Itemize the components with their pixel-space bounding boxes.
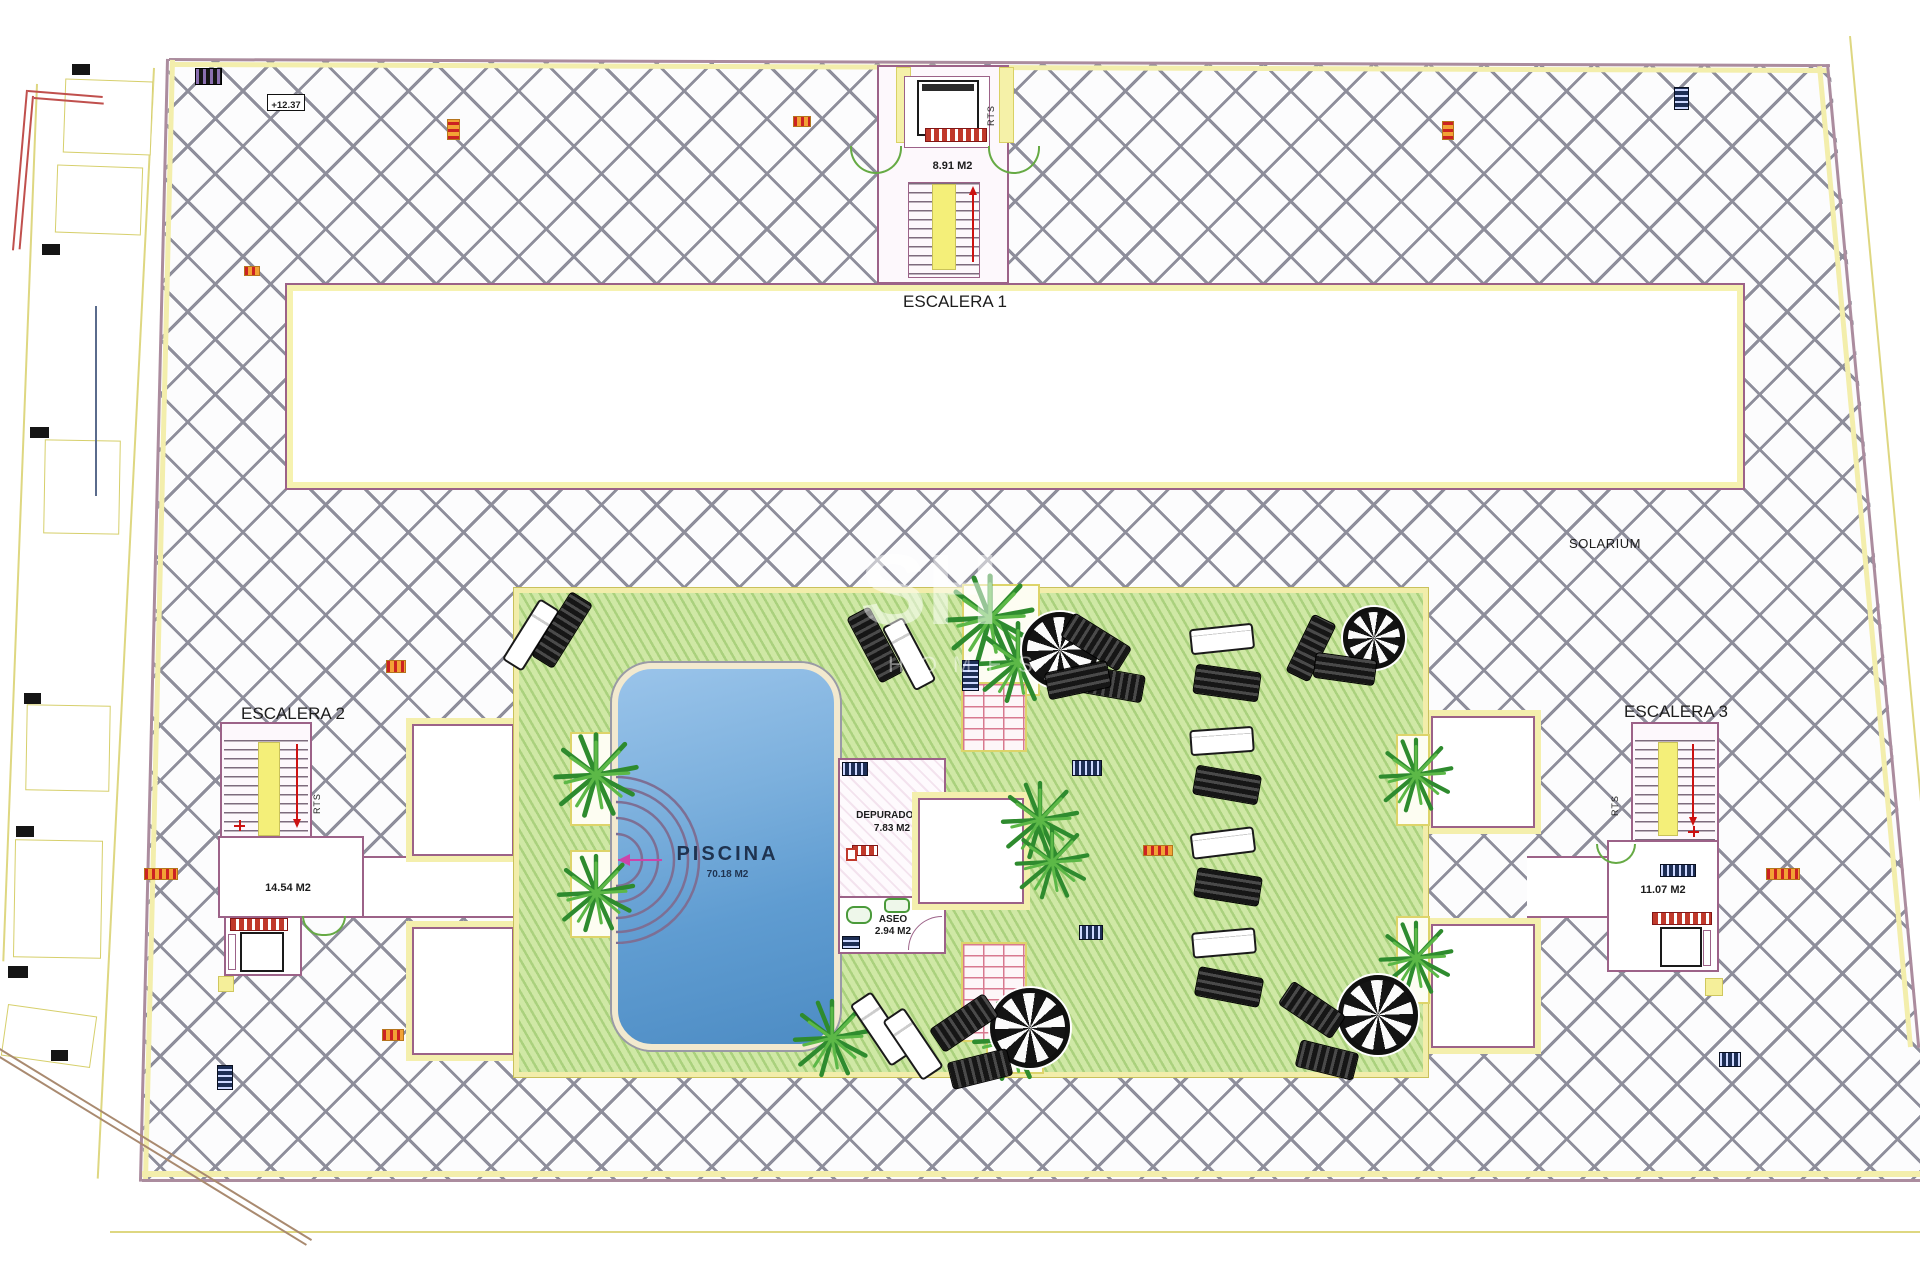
corridor-east [1527, 856, 1611, 918]
facade-panel [55, 165, 143, 236]
facade-panel [63, 78, 154, 155]
facade-vent-box [51, 1050, 68, 1061]
marker-blue [1719, 1052, 1741, 1067]
marker-blue [1079, 925, 1103, 940]
escalera3-room-badge [1660, 864, 1696, 877]
escalera2-area-label: 14.54 M2 [228, 882, 348, 894]
escalera3-lift-shaft [1660, 927, 1702, 967]
facade-vent-box [30, 427, 49, 438]
solarium-label: SOLARIUM [1540, 536, 1670, 551]
escalera2-stair-core [258, 742, 280, 836]
marker-orange [244, 266, 260, 276]
marker-blue [1072, 760, 1102, 776]
watermark-text: HOMES [888, 652, 1049, 678]
building-void [285, 283, 1745, 490]
palm-tree [1374, 733, 1458, 817]
rooftop-solarium-floor-plan: RTS 8.91 M2 ESCALERA 1 PISCINA 70.18 M2 … [0, 0, 1920, 1280]
palm-tree [1010, 820, 1094, 904]
escalera1-up-arrow [972, 190, 974, 262]
escalera1-lift-header [922, 84, 974, 91]
escalera1-yellow-strip [999, 67, 1014, 143]
palm-tree [552, 849, 640, 937]
pool-area-label: 70.18 M2 [640, 869, 815, 880]
corridor-west [356, 856, 516, 918]
escalera3-duct [1703, 930, 1711, 966]
escalera2-title: ESCALERA 2 [218, 704, 368, 724]
marker-orange [1442, 121, 1454, 140]
elevation-marker-value: +12.37 [271, 100, 300, 111]
marker-yellow [1705, 978, 1723, 996]
sun-lounger [1191, 927, 1257, 958]
escalera3-title: ESCALERA 3 [1600, 702, 1752, 722]
facade-vent-box [42, 244, 60, 255]
facade-vent-box [16, 826, 34, 837]
utility-badge-dark [195, 68, 222, 85]
marker-orange [1143, 845, 1173, 856]
marker-orange [144, 868, 178, 880]
escalera3-down-arrow [1692, 744, 1694, 822]
boundary-bottom [142, 1179, 1920, 1182]
toilet-fixture [884, 898, 910, 913]
sun-lounger [1189, 726, 1255, 756]
parasol [1338, 975, 1418, 1055]
escalera1-stair-core [932, 184, 956, 270]
palm-tree [548, 727, 644, 823]
aseo-title: ASEO [860, 914, 926, 925]
escalera2-marker-cross [234, 820, 245, 831]
marker-orange [382, 1029, 404, 1041]
escalera1-lift-doors [925, 128, 987, 142]
facade-panel [43, 439, 121, 534]
marker-orange [386, 660, 406, 673]
depuradora-floor-badge [842, 762, 868, 776]
marker-orange [1766, 868, 1800, 880]
pump-unit-body [846, 848, 857, 861]
escalera2-rts-label: RTS [312, 778, 326, 814]
escalera1-area-label: 8.91 M2 [905, 160, 1000, 172]
escalera2-down-arrow [296, 744, 298, 824]
escalera1-rts-label: RTS [986, 90, 1000, 126]
escalera3-lift-doors [1652, 912, 1712, 925]
escalera3-marker-cross [1688, 826, 1699, 837]
outer-yellow-bottom [110, 1231, 1920, 1233]
escalera2-room [218, 836, 364, 918]
facade-panel [13, 839, 103, 959]
escalera3-area-label: 11.07 M2 [1613, 884, 1713, 896]
escalera3-stair-core [1658, 742, 1678, 836]
pool-title: PISCINA [640, 843, 815, 866]
trim-bottom [142, 1171, 1920, 1177]
marker-yellow [218, 976, 234, 992]
blue-facade-line [95, 306, 97, 496]
escalera2-duct [228, 934, 236, 970]
marker-orange [793, 116, 811, 127]
marker-orange [447, 119, 460, 140]
marker-blue [1674, 87, 1689, 110]
escalera2-lift-shaft [240, 932, 284, 972]
aseo-badge [842, 936, 860, 949]
facade-vent-box [24, 693, 41, 704]
escalera2-lift-doors [230, 918, 288, 931]
escalera1-title: ESCALERA 1 [880, 292, 1030, 312]
facade-vent-box [72, 64, 90, 75]
deck-void [412, 927, 514, 1055]
watermark-logo: SH [860, 540, 999, 640]
elevation-marker: +12.37 [267, 94, 305, 111]
marker-blue [217, 1065, 233, 1090]
escalera3-rts-label: RTS [1610, 780, 1624, 816]
deck-void [412, 724, 514, 856]
facade-vent-box [8, 966, 28, 978]
facade-panel [25, 704, 110, 791]
